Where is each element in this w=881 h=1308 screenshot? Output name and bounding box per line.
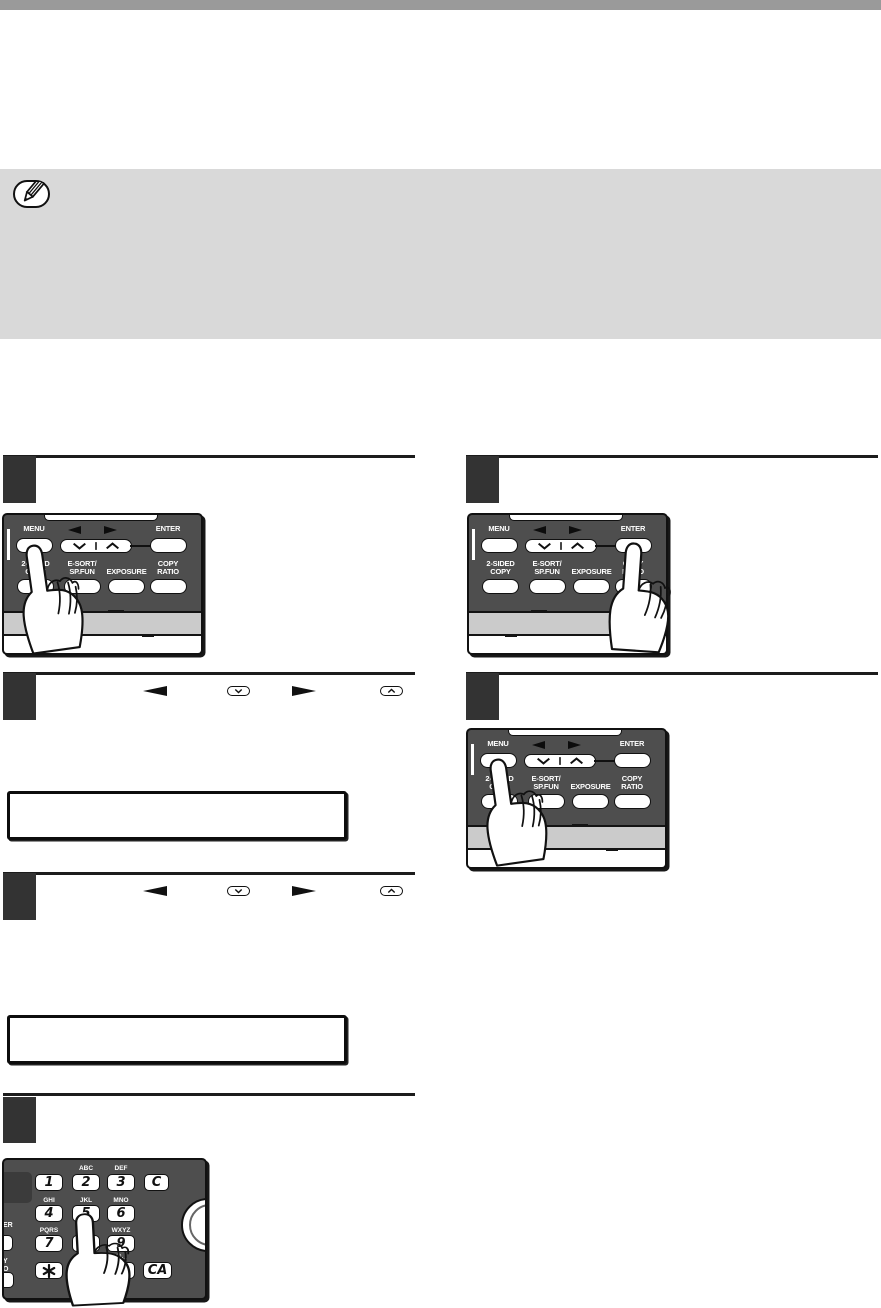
left-arrow-icon [532, 741, 545, 749]
left-arrow-key-icon [143, 686, 167, 696]
copy-ratio-key [614, 794, 651, 809]
panel-display-edge [44, 513, 158, 521]
down-key-icon [227, 686, 250, 696]
exposure-label: EXPOSURE [566, 783, 615, 791]
step-2-number [466, 456, 499, 503]
exposure-label: EXPOSURE [102, 568, 151, 576]
menu-key-label: MENU [478, 740, 518, 748]
right-arrow-key-icon [292, 686, 316, 696]
menu-key [481, 538, 518, 553]
esort-spfun-key [529, 579, 566, 594]
lcd-display-box [7, 791, 347, 840]
step-1-number [3, 456, 36, 503]
step-1-rule [3, 455, 415, 458]
enter-key [150, 538, 187, 553]
letters-ghi-label: GHI [35, 1197, 63, 1204]
right-arrow-icon [569, 526, 582, 534]
copy-ratio-key [150, 579, 187, 594]
pencil-icon [19, 182, 45, 206]
lcd-display-box [7, 1015, 347, 1064]
letters-jkl-label: JKL [72, 1197, 100, 1204]
edge-partial-key [2, 1272, 14, 1288]
key-3: 3 [107, 1174, 135, 1191]
step-3-rule [3, 672, 415, 675]
pointing-hand [472, 750, 565, 870]
letters-mno-label: MNO [107, 1197, 135, 1204]
panel-mark [472, 529, 475, 560]
panel-mark [531, 610, 547, 613]
step-6-number [3, 1097, 36, 1143]
exposure-key [573, 579, 610, 594]
step-6-rule [3, 1093, 415, 1096]
edge-partial-key [2, 1235, 13, 1251]
step-4-number [466, 673, 499, 720]
left-arrow-icon [68, 526, 81, 534]
step-5-rule [3, 872, 415, 875]
copy-ratio-label: COPY RATIO [145, 560, 191, 576]
up-key-icon [380, 886, 403, 896]
up-key-icon [380, 686, 403, 696]
right-arrow-icon [568, 741, 581, 749]
letters-abc-label: ABC [72, 1165, 100, 1172]
clear-all-key: CA [143, 1262, 172, 1279]
scroll-rocker-key [525, 539, 597, 553]
panel-display-edge [508, 728, 622, 736]
letters-def-label: DEF [107, 1165, 135, 1172]
panel-shadow-key [2, 1172, 32, 1203]
step-3-number [3, 673, 36, 720]
manual-page: MENU ENTER 2-SIDED COPY E-SORT/ SP.FUN E… [0, 0, 881, 1308]
step-5-number [3, 873, 36, 920]
clear-key: C [144, 1174, 169, 1191]
step-4-rule [466, 672, 878, 675]
menu-key-label: MENU [14, 525, 54, 533]
panel-mark [505, 634, 517, 637]
asterisk-icon [42, 1264, 56, 1278]
right-arrow-key-icon [292, 886, 316, 896]
exposure-key [572, 794, 609, 809]
key-1: 1 [35, 1174, 63, 1191]
right-arrow-icon [104, 526, 117, 534]
pointing-hand [601, 539, 687, 656]
menu-key-label: MENU [479, 525, 519, 533]
enter-key-label: ENTER [148, 525, 188, 533]
enter-key-label: ENTER [613, 525, 653, 533]
enter-key [614, 753, 651, 768]
esort-spfun-label: E-SORT/ SP.FUN [524, 560, 570, 576]
down-key-icon [227, 886, 250, 896]
two-sided-copy-label: 2-SIDED COPY [477, 560, 524, 576]
panel-mark [108, 610, 124, 613]
panel-mark [142, 634, 154, 637]
panel-display-edge [509, 513, 623, 521]
note-box [0, 169, 881, 339]
key-2: 2 [72, 1174, 100, 1191]
pointing-hand [57, 1209, 146, 1308]
pointing-hand [8, 536, 101, 658]
copy-ratio-label: COPY RATIO [609, 775, 655, 791]
page-top-bar [0, 0, 881, 10]
edge-label-y: Y [3, 1258, 8, 1265]
panel-mark [572, 824, 588, 827]
enter-key-label: ENTER [612, 740, 652, 748]
left-arrow-key-icon [143, 886, 167, 896]
two-sided-copy-key [482, 579, 519, 594]
edge-label-er: ER [3, 1222, 13, 1229]
note-icon-badge [13, 180, 50, 208]
panel-mark [606, 848, 618, 851]
left-arrow-icon [533, 526, 546, 534]
step-2-rule [466, 455, 878, 458]
exposure-key [108, 579, 145, 594]
